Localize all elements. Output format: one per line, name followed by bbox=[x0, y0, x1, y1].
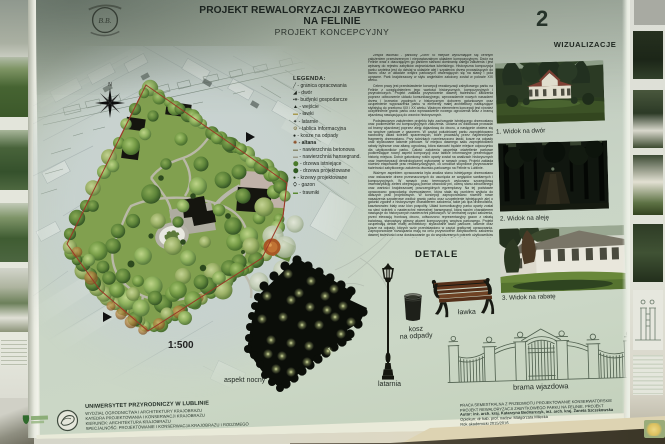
svg-text:1:500: 1:500 bbox=[168, 340, 194, 351]
svg-text:B.B.: B.B. bbox=[98, 16, 111, 25]
